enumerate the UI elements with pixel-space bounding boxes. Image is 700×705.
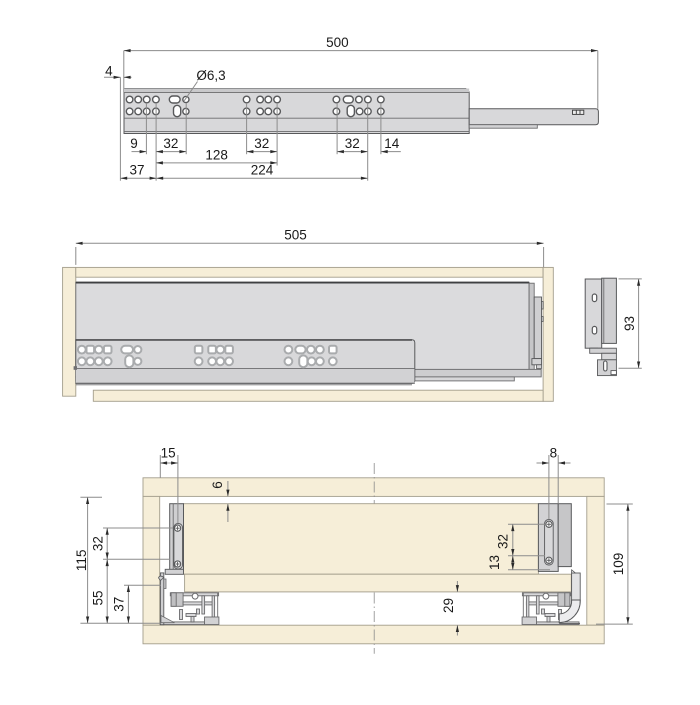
svg-text:93: 93	[622, 316, 637, 331]
svg-text:6: 6	[210, 481, 225, 489]
svg-text:29: 29	[441, 598, 456, 613]
svg-text:224: 224	[251, 163, 274, 178]
svg-text:32: 32	[254, 136, 269, 151]
svg-text:115: 115	[74, 550, 89, 572]
svg-text:32: 32	[495, 534, 510, 549]
svg-text:500: 500	[326, 35, 349, 50]
svg-text:128: 128	[205, 147, 228, 162]
svg-text:15: 15	[161, 446, 176, 461]
svg-text:4: 4	[105, 63, 113, 78]
svg-text:505: 505	[284, 228, 307, 243]
svg-text:37: 37	[111, 597, 126, 612]
svg-text:55: 55	[90, 590, 105, 605]
svg-text:9: 9	[130, 136, 138, 151]
svg-text:32: 32	[163, 136, 178, 151]
svg-text:13: 13	[487, 555, 502, 570]
svg-text:32: 32	[345, 136, 360, 151]
svg-text:37: 37	[129, 163, 144, 178]
svg-text:Ø6,3: Ø6,3	[196, 68, 225, 83]
svg-text:14: 14	[384, 136, 400, 151]
svg-text:8: 8	[550, 446, 558, 461]
svg-text:109: 109	[611, 553, 626, 576]
svg-text:32: 32	[90, 536, 105, 551]
